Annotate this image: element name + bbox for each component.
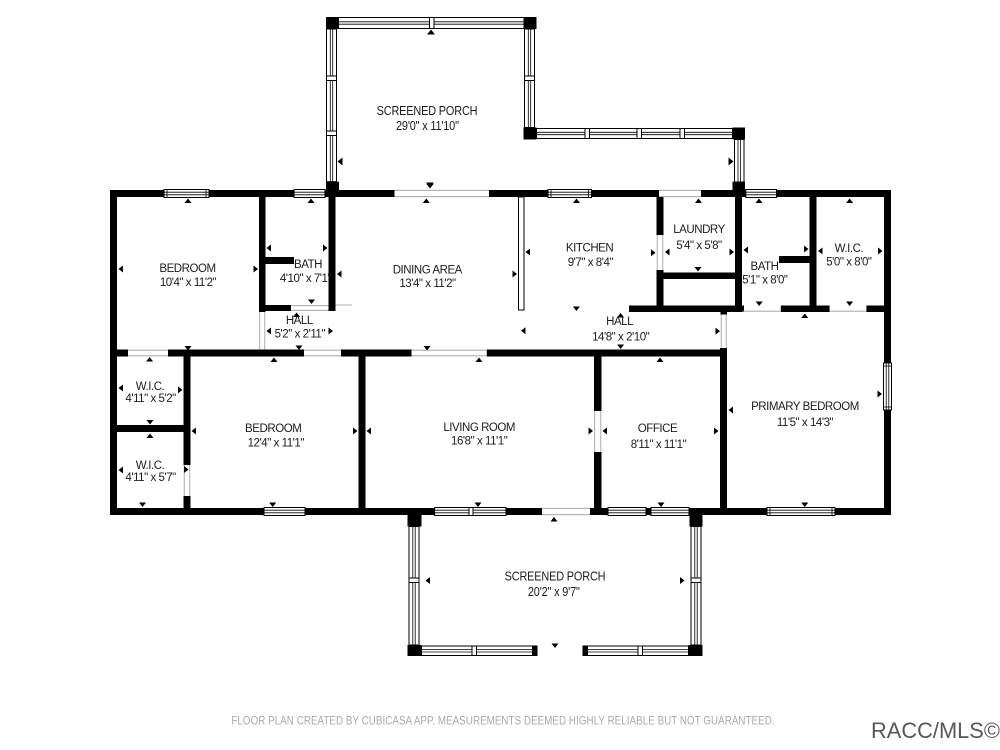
svg-text:BEDROOM: BEDROOM <box>159 263 215 275</box>
svg-text:8'11" x 11'1": 8'11" x 11'1" <box>631 439 687 451</box>
svg-text:29'0" x 11'10": 29'0" x 11'10" <box>396 118 459 133</box>
svg-text:KITCHEN: KITCHEN <box>566 243 613 255</box>
svg-text:10'4" x 11'2": 10'4" x 11'2" <box>160 277 217 289</box>
svg-text:RACC/MLS©: RACC/MLS© <box>871 718 1000 743</box>
svg-text:LAUNDRY: LAUNDRY <box>673 224 725 236</box>
svg-text:5'4" x 5'8": 5'4" x 5'8" <box>676 240 722 252</box>
svg-text:SCREENED PORCH: SCREENED PORCH <box>377 103 478 118</box>
svg-text:FLOOR PLAN CREATED BY CUBICASA: FLOOR PLAN CREATED BY CUBICASA APP. MEAS… <box>231 715 774 728</box>
svg-text:PRIMARY BEDROOM: PRIMARY BEDROOM <box>751 401 859 413</box>
svg-text:4'10" x 7'1": 4'10" x 7'1" <box>280 273 332 285</box>
svg-text:13'4" x 11'2": 13'4" x 11'2" <box>399 278 456 290</box>
svg-text:12'4" x 11'1": 12'4" x 11'1" <box>248 438 305 450</box>
svg-text:W.I.C.: W.I.C. <box>835 243 864 255</box>
svg-text:5'0" x 8'0": 5'0" x 8'0" <box>826 257 872 269</box>
svg-text:DINING AREA: DINING AREA <box>393 265 463 277</box>
svg-text:14'8" x 2'10": 14'8" x 2'10" <box>592 332 650 344</box>
svg-text:9'7" x 8'4": 9'7" x 8'4" <box>568 257 614 269</box>
svg-text:HALL: HALL <box>606 316 634 328</box>
svg-text:SCREENED PORCH: SCREENED PORCH <box>505 569 606 584</box>
svg-text:BEDROOM: BEDROOM <box>245 423 301 435</box>
svg-text:16'8" x 11'1": 16'8" x 11'1" <box>451 436 508 448</box>
svg-text:4'11" x 5'2": 4'11" x 5'2" <box>125 393 176 405</box>
svg-text:BATH: BATH <box>750 261 778 273</box>
svg-text:LIVING ROOM: LIVING ROOM <box>443 422 515 434</box>
svg-text:4'11" x 5'7": 4'11" x 5'7" <box>125 472 176 484</box>
svg-text:20'2" x 9'7": 20'2" x 9'7" <box>528 584 580 599</box>
svg-text:BATH: BATH <box>294 259 322 271</box>
svg-text:11'5" x 14'3": 11'5" x 14'3" <box>777 417 834 429</box>
svg-text:W.I.C.: W.I.C. <box>136 381 165 393</box>
svg-text:OFFICE: OFFICE <box>638 423 678 435</box>
svg-text:5'2" x 2'11": 5'2" x 2'11" <box>275 329 326 341</box>
svg-text:W.I.C.: W.I.C. <box>136 460 165 472</box>
svg-text:5'1" x 8'0": 5'1" x 8'0" <box>742 275 788 287</box>
